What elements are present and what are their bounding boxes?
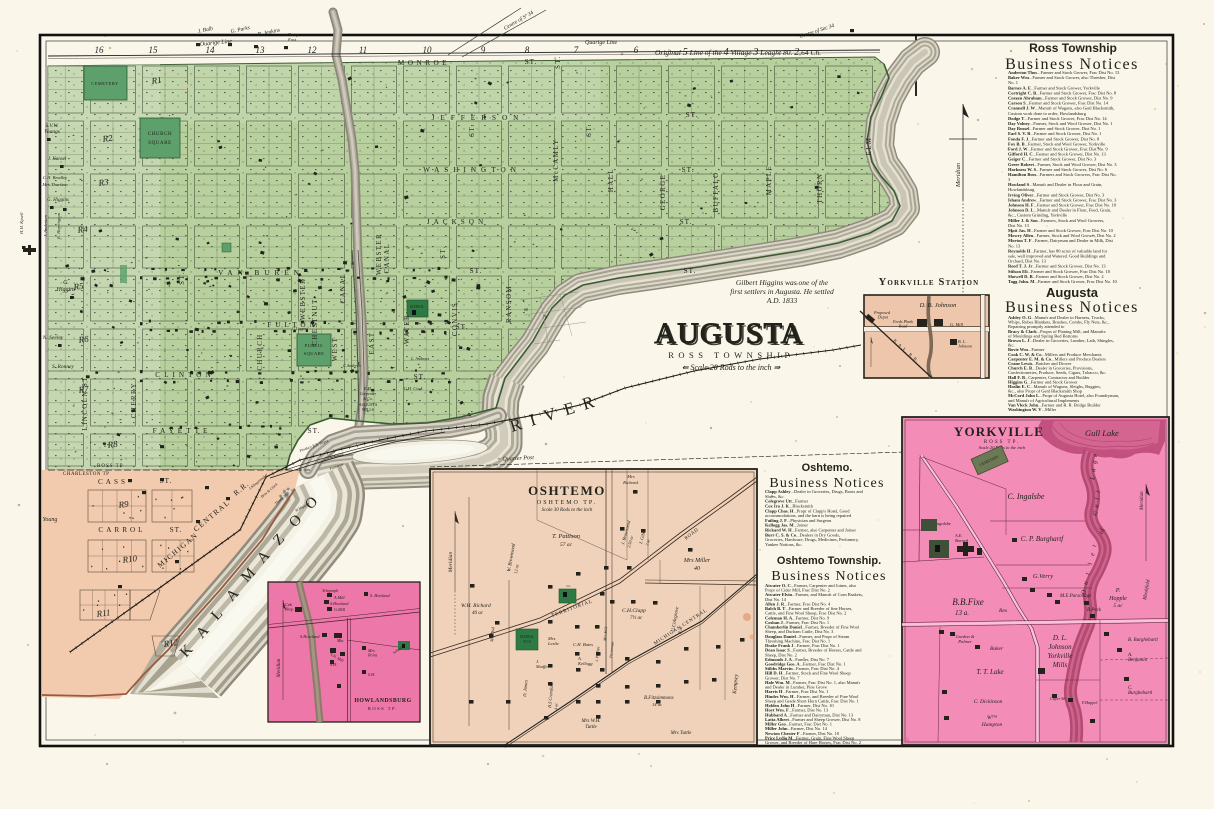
svg-text:N. Seeley: N. Seeley xyxy=(42,335,64,341)
svg-text:ROSS TP: ROSS TP xyxy=(97,464,124,469)
svg-text:OSHTEMO TP.: OSHTEMO TP. xyxy=(537,500,597,506)
svg-text:M.E.Parsonage: M.E.Parsonage xyxy=(1059,594,1092,599)
svg-text:G. Higgins: G. Higgins xyxy=(47,198,69,203)
svg-text:Gilbert Higgins was one of the: Gilbert Higgins was one of the xyxy=(736,278,829,287)
svg-text:H.H. Kysell: H.H. Kysell xyxy=(19,212,24,235)
svg-text:Yorkville Station: Yorkville Station xyxy=(879,277,980,288)
svg-text:G. Mill: G. Mill xyxy=(950,322,964,327)
svg-text:Higgins: Higgins xyxy=(55,287,76,293)
svg-text:Mks: Mks xyxy=(336,639,344,643)
svg-text:Mrs Tuttle: Mrs Tuttle xyxy=(670,731,692,736)
svg-text:Mrs Miller: Mrs Miller xyxy=(683,558,711,564)
svg-text:SCHOOL: SCHOOL xyxy=(410,305,424,309)
svg-text:C.H. Bradley: C.H. Bradley xyxy=(43,175,68,180)
svg-text:ST.: ST. xyxy=(414,373,427,381)
svg-text:CHURCH: CHURCH xyxy=(257,333,264,370)
svg-text:Business Notices: Business Notices xyxy=(771,569,886,584)
svg-text:Oshtemo Township.: Oshtemo Township. xyxy=(777,555,881,567)
svg-text:Business Notices: Business Notices xyxy=(1005,299,1139,316)
svg-text:ST.: ST. xyxy=(525,58,538,66)
svg-text:Leslie: Leslie xyxy=(547,641,559,646)
svg-text:Johnson: Johnson xyxy=(958,344,972,349)
svg-text:B.Peck: B.Peck xyxy=(1087,608,1102,613)
svg-text:Shop: Shop xyxy=(285,607,293,612)
svg-text:WASHINGTON: WASHINGTON xyxy=(423,166,521,174)
svg-text:C. Dickinson: C. Dickinson xyxy=(974,699,1003,705)
svg-text:R9: R9 xyxy=(117,499,130,511)
svg-text:J.L.: J.L. xyxy=(566,584,571,588)
svg-text:Yorkville: Yorkville xyxy=(1048,652,1073,660)
svg-text:D. L.: D. L. xyxy=(1052,634,1067,642)
svg-text:Richard.: Richard. xyxy=(622,480,639,485)
svg-text:CARROL: CARROL xyxy=(98,526,145,534)
svg-text:ELM: ELM xyxy=(866,137,873,156)
svg-text:R2: R2 xyxy=(101,133,114,145)
svg-text:Rex: Rex xyxy=(998,608,1008,614)
svg-text:CHERRY: CHERRY xyxy=(131,382,138,418)
svg-text:HOWLANDSBURG: HOWLANDSBURG xyxy=(354,698,411,704)
svg-text:Mrs Thurston: Mrs Thurston xyxy=(41,182,68,187)
svg-text:16: 16 xyxy=(95,45,105,55)
svg-text:E. Harrington: E. Harrington xyxy=(56,212,61,240)
svg-text:CONVIS: CONVIS xyxy=(452,302,459,336)
svg-text:Gull Lake: Gull Lake xyxy=(1085,428,1119,438)
svg-text:Washington W. V...Miller: Washington W. V...Miller xyxy=(1008,407,1057,412)
svg-text:W.H. Richard: W.H. Richard xyxy=(461,603,491,609)
svg-text:W™: W™ xyxy=(987,715,998,721)
svg-text:ST.: ST. xyxy=(170,526,183,534)
svg-text:G.: G. xyxy=(63,280,69,286)
svg-text:57 ac: 57 ac xyxy=(560,542,573,548)
svg-text:first settlers in Augusta. He: first settlers in Augusta. He settled xyxy=(730,287,834,296)
svg-text:S.Howland: S.Howland xyxy=(330,601,349,606)
svg-text:ST.: ST. xyxy=(686,111,699,119)
svg-text:EAST: EAST xyxy=(369,332,376,355)
svg-text:70: 70 xyxy=(543,314,547,319)
svg-text:Tuttle: Tuttle xyxy=(585,725,597,730)
svg-text:Mrs W.H.: Mrs W.H. xyxy=(580,719,600,724)
svg-text:& Co.: & Co. xyxy=(363,396,373,401)
svg-text:Point: Point xyxy=(367,653,378,658)
svg-text:McCAMLY: McCAMLY xyxy=(553,138,560,181)
svg-text:CHARLESTON TP: CHARLESTON TP xyxy=(63,472,109,477)
svg-text:WEST: WEST xyxy=(332,337,339,362)
svg-text:C.H. Cock: C.H. Cock xyxy=(404,386,424,391)
svg-text:CASS: CASS xyxy=(98,478,128,486)
svg-text:Augusta: Augusta xyxy=(1046,285,1099,300)
svg-text:CANAL: CANAL xyxy=(384,243,391,274)
svg-text:ST.: ST. xyxy=(308,427,321,435)
svg-text:Young: Young xyxy=(43,517,58,523)
svg-text:Mrs: Mrs xyxy=(626,474,635,479)
svg-text:JACKSON: JACKSON xyxy=(427,218,487,226)
svg-text:Palmer: Palmer xyxy=(957,639,972,644)
svg-text:VAN BUREN: VAN BUREN xyxy=(218,269,304,277)
svg-text:AUGUSTA: AUGUSTA xyxy=(654,317,803,350)
svg-text:40: 40 xyxy=(694,565,700,572)
svg-text:G.Verry: G.Verry xyxy=(1033,573,1054,580)
svg-text:ST.: ST. xyxy=(440,245,447,259)
svg-text:Meridian: Meridian xyxy=(277,658,282,678)
svg-text:MONROE: MONROE xyxy=(398,59,450,67)
svg-text:8: 8 xyxy=(525,45,530,55)
svg-text:Quarige Line: Quarige Line xyxy=(585,40,618,46)
svg-text:SQUARE: SQUARE xyxy=(304,351,325,356)
svg-text:C. Ingalsbe: C. Ingalsbe xyxy=(1008,492,1045,501)
svg-text:Fost.: Fost. xyxy=(287,37,297,42)
svg-text:CANAL: CANAL xyxy=(340,273,347,304)
svg-text:WEBSTER: WEBSTER xyxy=(300,278,307,320)
svg-text:S. Ronney: S. Ronney xyxy=(52,364,75,370)
svg-text:Meridian: Meridian xyxy=(955,163,962,188)
svg-text:CEMETERY: CEMETERY xyxy=(91,81,119,86)
svg-text:B.B.Fixe: B.B.Fixe xyxy=(952,597,983,607)
svg-text:Hampton: Hampton xyxy=(981,722,1003,728)
svg-text:Telegraph: Telegraph xyxy=(322,588,338,593)
svg-text:R3: R3 xyxy=(97,177,110,189)
svg-text:Benjamin: Benjamin xyxy=(1128,658,1148,663)
svg-text:Mills: Mills xyxy=(1052,661,1068,669)
svg-text:Hopple: Hopple xyxy=(1108,596,1127,602)
svg-text:Depot: Depot xyxy=(877,315,889,320)
svg-text:LINCOLN ST.: LINCOLN ST. xyxy=(82,373,89,430)
svg-text:Oshtemo.: Oshtemo. xyxy=(802,462,853,474)
svg-text:T. T. Lake: T. T. Lake xyxy=(976,668,1003,676)
svg-text:SCHOOL: SCHOOL xyxy=(520,635,534,639)
svg-text:Johnson: Johnson xyxy=(1048,643,1072,651)
svg-text:MILLS: MILLS xyxy=(362,407,374,412)
svg-text:J. Anderson: J. Anderson xyxy=(43,214,48,237)
svg-text:ST.: ST. xyxy=(555,55,562,69)
svg-text:C.H. Bates: C.H. Bates xyxy=(573,642,593,647)
svg-text:Scale 30 Rods to the inch: Scale 30 Rods to the inch xyxy=(542,508,593,513)
svg-text:ROSS TP.: ROSS TP. xyxy=(368,706,398,711)
svg-text:G.Liggins: G.Liggins xyxy=(292,326,308,331)
svg-text:T. Pattison: T. Pattison xyxy=(552,533,580,540)
svg-text:ST.: ST. xyxy=(469,123,476,137)
svg-text:GEORGE: GEORGE xyxy=(660,174,667,211)
svg-text:ST.: ST. xyxy=(179,271,186,285)
svg-text:S.Howland: S.Howland xyxy=(300,634,320,639)
svg-text:YORKVILLE: YORKVILLE xyxy=(954,424,1044,439)
svg-text:R8: R8 xyxy=(106,439,119,451)
svg-text:J. Kansel: J. Kansel xyxy=(48,157,67,162)
svg-text:THORN: THORN xyxy=(817,173,824,204)
svg-text:BUFFALO: BUFFALO xyxy=(713,172,720,213)
svg-text:6: 6 xyxy=(634,45,639,55)
svg-text:ST.: ST. xyxy=(586,123,593,137)
svg-text:JEFFERSON: JEFFERSON xyxy=(432,114,525,122)
svg-text:Meridian: Meridian xyxy=(448,552,454,574)
svg-text:40 ac: 40 ac xyxy=(472,611,484,616)
svg-text:⇚ Scale 20 Rods to the inch ⇛: ⇚ Scale 20 Rods to the inch ⇛ xyxy=(682,363,781,372)
svg-text:Original 5 Line of the 4 Villa: Original 5 Line of the 4 Village 3 Leagh… xyxy=(655,47,821,58)
svg-text:SQUARE: SQUARE xyxy=(148,141,172,146)
svg-text:C.Andrews: C.Andrews xyxy=(343,363,361,368)
svg-text:R1: R1 xyxy=(150,75,162,86)
svg-text:C. P. Burghartf: C. P. Burghartf xyxy=(1021,535,1064,543)
svg-text:ST.: ST. xyxy=(470,267,483,275)
svg-text:B. Burghebartl: B. Burghebartl xyxy=(1128,638,1158,643)
svg-text:Ross Township: Ross Township xyxy=(1029,41,1117,55)
svg-text:Baker: Baker xyxy=(990,646,1004,652)
svg-text:7: 7 xyxy=(574,45,579,55)
svg-text:S.H.: S.H. xyxy=(368,672,375,677)
svg-text:P.: P. xyxy=(1115,588,1120,594)
svg-text:9: 9 xyxy=(481,45,486,55)
svg-text:CHURCH: CHURCH xyxy=(148,132,172,137)
svg-text:5 ac: 5 ac xyxy=(1113,603,1123,609)
svg-text:Burghebartl: Burghebartl xyxy=(1128,691,1153,696)
svg-text:Kellogg: Kellogg xyxy=(577,661,593,666)
svg-text:11: 11 xyxy=(359,45,367,55)
svg-text:15: 15 xyxy=(149,45,159,55)
svg-text:A.D. 1833: A.D. 1833 xyxy=(766,296,798,305)
svg-text:R4: R4 xyxy=(76,224,89,236)
svg-text:G.Mill: G.Mill xyxy=(334,607,346,612)
svg-text:R6: R6 xyxy=(77,334,90,346)
svg-text:S. Howland: S. Howland xyxy=(370,593,390,598)
svg-text:12: 12 xyxy=(308,45,318,55)
svg-text:Meridian: Meridian xyxy=(1140,491,1145,511)
svg-text:D. B. Johnson: D. B. Johnson xyxy=(919,302,957,309)
svg-text:WEBSTER: WEBSTER xyxy=(376,233,383,275)
svg-text:ST.: ST. xyxy=(682,166,695,174)
svg-text:Road: Road xyxy=(898,324,908,329)
svg-text:OSHTEMO: OSHTEMO xyxy=(528,483,606,498)
svg-text:ROSS TOWNSHIP: ROSS TOWNSHIP xyxy=(668,350,794,360)
svg-text:Shaffer: Shaffer xyxy=(536,664,549,669)
svg-text:13 a.: 13 a. xyxy=(955,609,969,617)
svg-text:RANSOM: RANSOM xyxy=(506,285,513,323)
svg-text:HALL: HALL xyxy=(608,168,615,192)
svg-text:MAPLE: MAPLE xyxy=(766,165,773,196)
svg-text:68: 68 xyxy=(524,307,528,312)
svg-text:Youngs: Youngs xyxy=(44,129,60,135)
svg-text:7½ ac: 7½ ac xyxy=(630,616,643,621)
svg-text:C. Andrews: C. Andrews xyxy=(411,356,430,361)
svg-text:R7: R7 xyxy=(77,384,90,396)
svg-text:10: 10 xyxy=(423,45,433,55)
svg-text:ST.: ST. xyxy=(680,218,693,226)
svg-text:4 ac: 4 ac xyxy=(553,702,559,710)
svg-text:R11: R11 xyxy=(95,607,111,619)
svg-text:C.H.Clapp: C.H.Clapp xyxy=(622,608,646,614)
svg-text:A.Mill: A.Mill xyxy=(333,595,345,600)
svg-text:Nº10: Nº10 xyxy=(523,640,531,644)
svg-text:WATER: WATER xyxy=(404,314,411,344)
svg-text:ST.: ST. xyxy=(684,267,697,275)
svg-text:F.Happel: F.Happel xyxy=(1081,700,1098,705)
svg-text:CLINTON: CLINTON xyxy=(155,371,214,379)
